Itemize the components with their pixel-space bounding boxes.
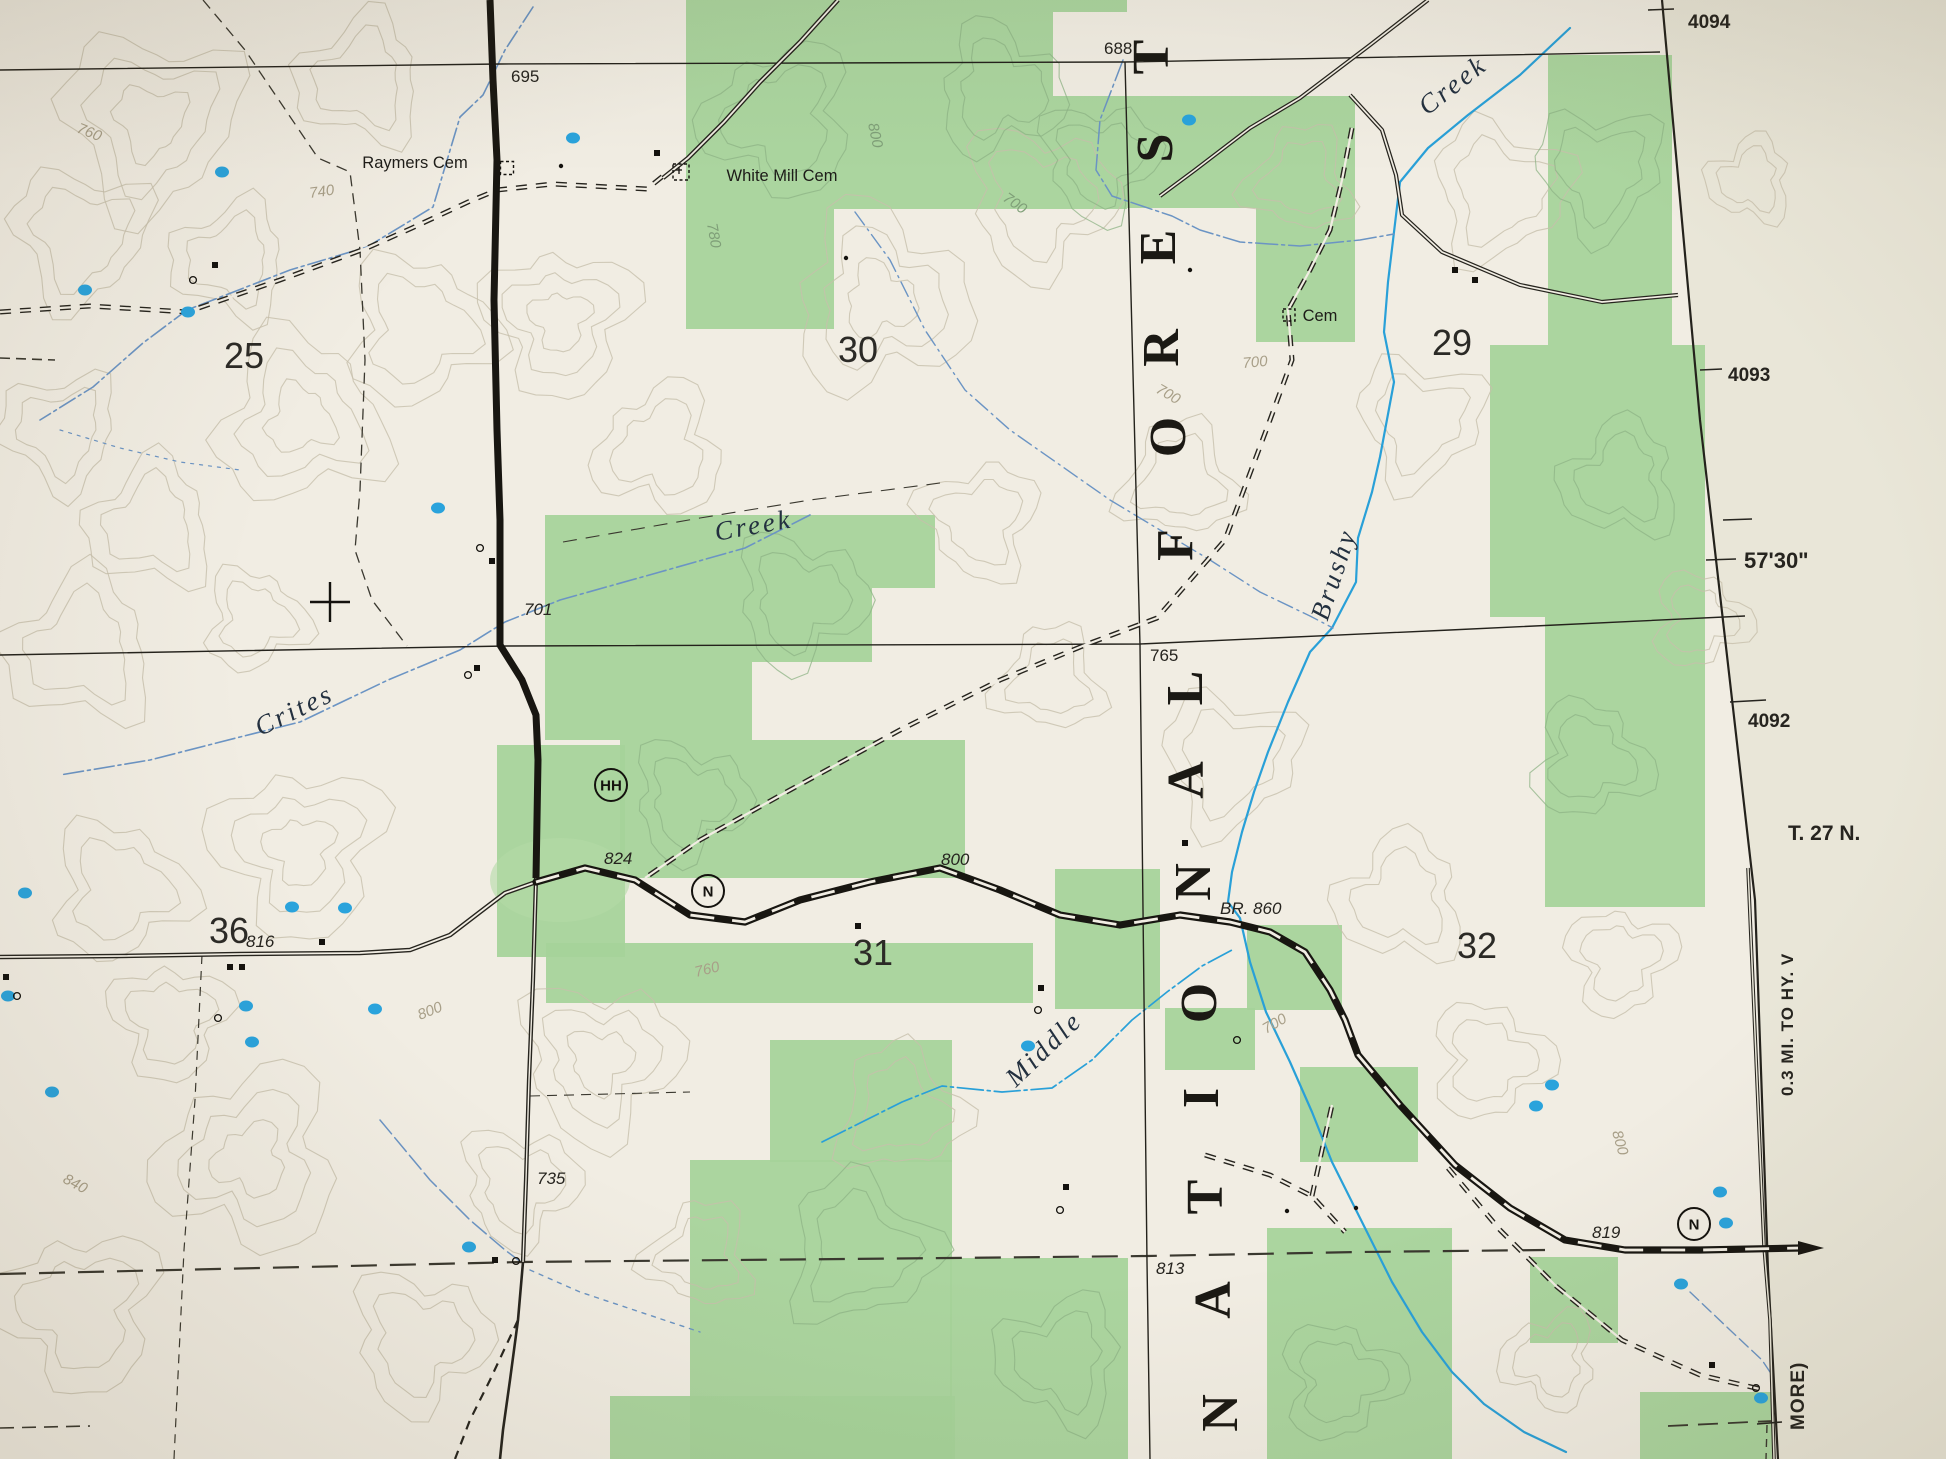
forest-patch [546, 943, 1033, 1003]
building-square [654, 150, 660, 156]
building-square [1472, 277, 1478, 283]
pond [338, 903, 352, 914]
building-square [474, 665, 480, 671]
building-square [1182, 840, 1188, 846]
building-square [227, 964, 233, 970]
spot-dot [1188, 268, 1192, 272]
building-square [492, 1257, 498, 1263]
margin-label: 4093 [1728, 365, 1770, 386]
margin-tick [1648, 9, 1674, 10]
road-shield-letter: HH [600, 778, 622, 795]
spot-elevation: 800 [941, 850, 970, 869]
building-square [3, 974, 9, 980]
pond [215, 167, 229, 178]
section-number: 30 [838, 329, 878, 370]
pond [285, 902, 299, 913]
national-forest-letter: N [1192, 1394, 1249, 1432]
place-label: Cem [1303, 307, 1338, 325]
margin-label: 4092 [1748, 711, 1790, 732]
pond [1719, 1218, 1733, 1229]
pond [368, 1004, 382, 1015]
section-number: 31 [853, 932, 893, 973]
national-forest-letter: L [1157, 671, 1214, 706]
pond [1754, 1393, 1768, 1404]
spot-dot [1285, 1209, 1289, 1213]
spot-elevation: 824 [604, 849, 632, 868]
pond [181, 307, 195, 318]
margin-vertical-note: 0.3 MI. TO HY. V [1778, 953, 1797, 1096]
section-number: 32 [1457, 925, 1497, 966]
building-square [855, 923, 861, 929]
building-square [1038, 985, 1044, 991]
spot-dot [559, 164, 563, 168]
pond [239, 1001, 253, 1012]
national-forest-letter: T [1177, 1180, 1234, 1215]
margin-vertical-note: MORE) [1788, 1362, 1809, 1430]
pond [566, 133, 580, 144]
spot-elevation: 813 [1156, 1259, 1185, 1278]
national-forest-letter: F [1147, 529, 1204, 561]
building-square [212, 262, 218, 268]
contour-label: 700 [1242, 353, 1269, 372]
spot-elevation: BR. 860 [1220, 899, 1282, 918]
margin-tick [1700, 369, 1722, 370]
spot-elevation: 688 [1104, 39, 1132, 58]
spot-elevation: 816 [246, 932, 275, 951]
national-forest-letter: A [1158, 761, 1215, 799]
section-number: 36 [209, 910, 249, 951]
building-square [239, 964, 245, 970]
national-forest-letter: R [1133, 328, 1190, 367]
forest-patch [1640, 1392, 1772, 1459]
pond [1, 991, 15, 1002]
pond [1529, 1101, 1543, 1112]
building-square [1063, 1184, 1069, 1190]
margin-label: T. 27 N. [1788, 822, 1860, 845]
dashed-line [1766, 1425, 1767, 1459]
building-square [489, 558, 495, 564]
pond [18, 888, 32, 899]
map-photo: TSEROFLANOITAN25302936313269568870176582… [0, 0, 1946, 1459]
spot-elevation: 735 [537, 1169, 566, 1188]
place-label: White Mill Cem [727, 167, 838, 185]
forest-patch [1545, 617, 1705, 907]
pond [1713, 1187, 1727, 1198]
forest-patch [610, 1396, 955, 1459]
margin-label: 57'30" [1744, 548, 1809, 573]
building-square [1452, 267, 1458, 273]
contour-label: 740 [308, 182, 336, 202]
building-square [319, 939, 325, 945]
spot-elevation: 765 [1150, 646, 1178, 665]
spot-dot [844, 256, 848, 260]
section-number: 25 [224, 335, 264, 376]
national-forest-letter: N [1165, 863, 1222, 901]
spot-elevation: 701 [524, 600, 552, 619]
spot-elevation: 819 [1592, 1223, 1621, 1242]
pond [431, 503, 445, 514]
pond [245, 1037, 259, 1048]
building-square [1709, 1362, 1715, 1368]
pond [78, 285, 92, 296]
national-forest-letter: I [1173, 1088, 1230, 1108]
national-forest-letter: E [1130, 230, 1187, 265]
national-forest-letter: A [1185, 1281, 1242, 1319]
pond [1674, 1279, 1688, 1290]
margin-tick [1706, 559, 1736, 560]
spot-elevation: 695 [511, 67, 539, 86]
pond [45, 1087, 59, 1098]
pond [462, 1242, 476, 1253]
national-forest-letter: O [1171, 983, 1228, 1023]
place-label: Raymers Cem [362, 154, 467, 172]
road-shield-letter: N [1689, 1217, 1700, 1234]
margin-tick [1723, 519, 1752, 520]
road-shield-letter: N [703, 884, 714, 901]
topo-map: TSEROFLANOITAN25302936313269568870176582… [0, 0, 1946, 1459]
pond [1182, 115, 1196, 126]
forest-patch [1300, 1067, 1418, 1162]
national-forest-letter: O [1140, 417, 1197, 457]
margin-label: 4094 [1688, 12, 1731, 33]
section-number: 29 [1432, 322, 1472, 363]
forest-patch [1490, 345, 1705, 617]
national-forest-letter: S [1127, 134, 1184, 163]
pond [1545, 1080, 1559, 1091]
forest-patch [950, 1258, 1128, 1459]
spot-dot [1354, 1206, 1358, 1210]
